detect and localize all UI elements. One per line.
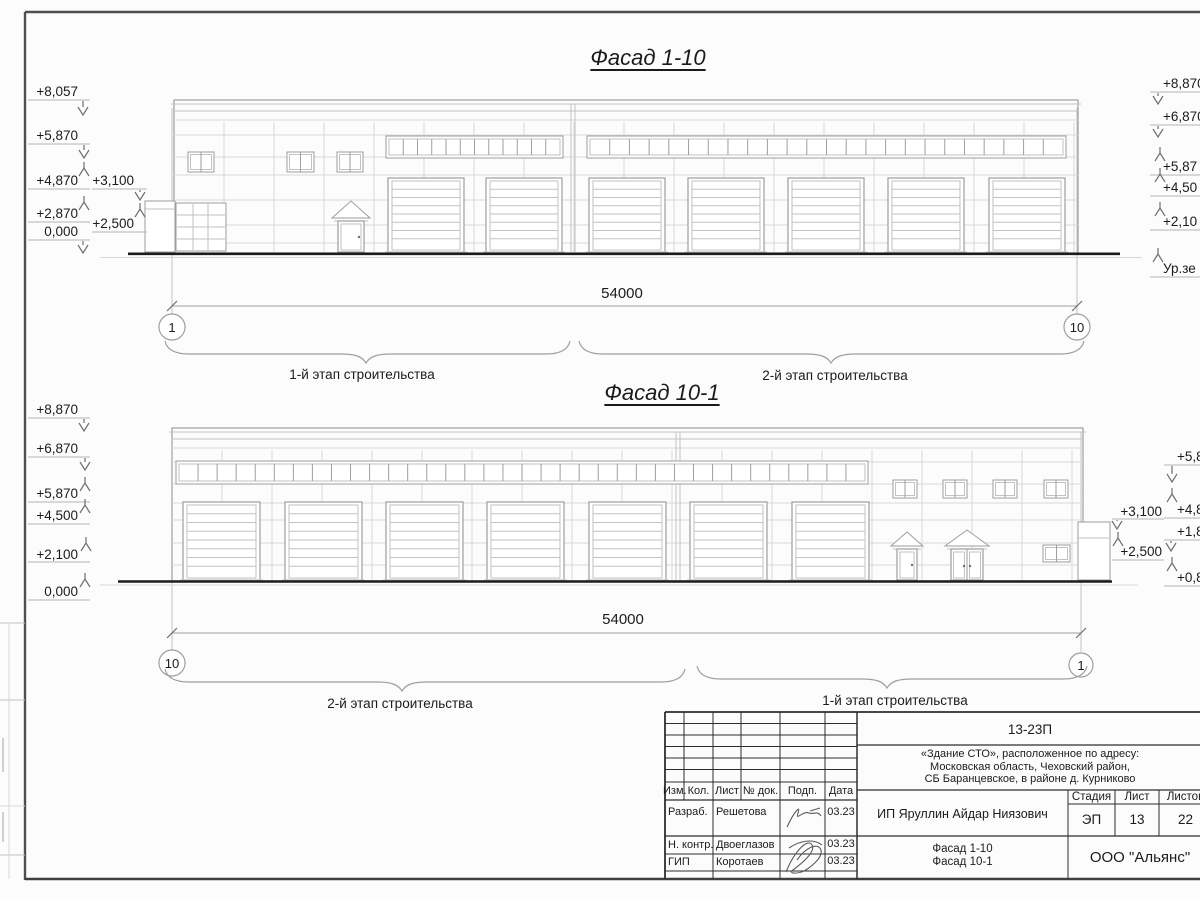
signer-name: Коротаев (716, 856, 778, 868)
elevation-mark: +5,870 (26, 486, 78, 501)
stage-value: ЭП (1068, 812, 1115, 827)
elevation-mark: +4,870 (26, 173, 78, 188)
doc-code: 13-23П (860, 722, 1200, 737)
signer-role: Разраб. (668, 806, 713, 818)
signer-role: ГИП (668, 856, 713, 868)
drawing-name-line2: Фасад 10-1 (857, 856, 1068, 868)
elevation-mark: +8,057 (26, 84, 78, 99)
elevation-mark: +6,870 (26, 441, 78, 456)
elevation-mark: +3,100 (90, 173, 134, 188)
facade1-stage2-label: 2-й этап строительства (735, 368, 935, 383)
rev-col-izm: Изм. (663, 785, 685, 797)
facade2-stage1-label: 1-й этап строительства (795, 693, 995, 708)
project-address-line1: «Здание СТО», расположенное по адресу: (860, 748, 1200, 760)
elevation-mark: +4,8 (1177, 502, 1200, 517)
signer-name: Решетова (716, 806, 778, 818)
signer-role: Н. контр. (668, 839, 716, 851)
drawing-name-line1: Фасад 1-10 (857, 843, 1068, 855)
elevation-mark: +6,870 (1163, 109, 1200, 124)
elevation-mark: +4,50 (1163, 180, 1200, 195)
client-name: ИП Яруллин Айдар Ниязович (857, 807, 1068, 821)
project-address-line3: СБ Баранцевское, в районе д. Курниково (860, 773, 1200, 785)
signer-date: 03.23 (825, 838, 857, 850)
sheets-col-label: Листов (1159, 791, 1200, 803)
rev-col-data: Дата (825, 785, 857, 797)
facade1-stage1-label: 1-й этап строительства (262, 367, 462, 382)
elevation-mark: 0,000 (26, 224, 78, 239)
facade2-stage2-label: 2-й этап строительства (300, 696, 500, 711)
sheet-value: 13 (1115, 812, 1159, 827)
signer-name: Двоеглазов (716, 839, 778, 851)
facade1-dimension-label: 54000 (572, 285, 672, 302)
elevation-mark: +2,500 (1116, 544, 1162, 559)
rev-col-kol: Кол. (684, 785, 713, 797)
elevation-mark: +5,8 (1177, 449, 1200, 464)
elevation-mark: 0,000 (26, 584, 78, 599)
facade2-axis-right: 1 (1066, 658, 1096, 673)
elevation-mark: +2,10 (1163, 214, 1200, 229)
rev-col-ndok: № док. (741, 785, 780, 797)
facade1-axis-right: 10 (1062, 320, 1092, 335)
signer-date: 03.23 (825, 806, 857, 818)
elevation-mark: +2,870 (26, 206, 78, 221)
rev-col-list: Лист (713, 785, 741, 797)
elevation-mark: +8,870 (1163, 76, 1200, 91)
elevation-mark: +2,100 (26, 547, 78, 562)
facade2-axis-left: 10 (157, 656, 187, 671)
stage-col-label: Стадия (1068, 791, 1115, 803)
sheets-value: 22 (1159, 812, 1200, 827)
elevation-mark: +1,8 (1177, 524, 1200, 539)
elevation-mark: +0,8 (1177, 570, 1200, 585)
elevation-mark: +4,500 (26, 508, 78, 523)
elevation-mark: +8,870 (26, 402, 78, 417)
rev-col-podp: Подп. (780, 785, 825, 797)
company-name: ООО "Альянс" (1068, 849, 1200, 866)
project-address-line2: Московская область, Чеховский район, (860, 761, 1200, 773)
facade2-dimension-label: 54000 (573, 611, 673, 628)
elevation-mark: +3,100 (1116, 504, 1162, 519)
elevation-mark: +2,500 (90, 216, 134, 231)
facade2-title: Фасад 10-1 (512, 380, 812, 406)
facade1-axis-left: 1 (157, 320, 187, 335)
elevation-mark: +5,870 (26, 128, 78, 143)
elevation-mark: Ур.зе (1163, 261, 1200, 276)
facade1-title: Фасад 1-10 (498, 45, 798, 71)
elevation-mark: +5,87 (1163, 159, 1200, 174)
signer-date: 03.23 (825, 855, 857, 867)
sheet: { "titles": { "facade1": "Фасад 1-10", "… (0, 0, 1200, 900)
sheet-col-label: Лист (1115, 791, 1159, 803)
